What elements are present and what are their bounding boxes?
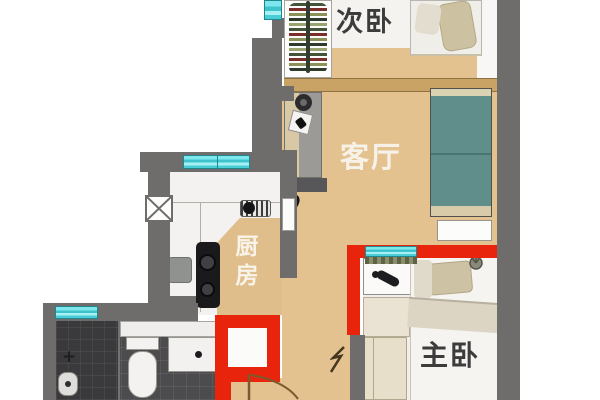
duct-shaft-symbol [145,195,173,222]
bathroom-sink [168,337,218,372]
master-bedroom-label: 主卧 [420,334,480,374]
bedroom-bench [363,297,410,337]
stove [196,242,220,308]
kitchen-sink [168,257,192,283]
dish-rack-pot [243,202,255,214]
dresser [363,337,407,400]
side-table [437,220,492,241]
entry-door-swing [240,372,305,400]
shower-head-icon: + [60,348,78,366]
clothes-rail [306,1,310,73]
wall [43,321,56,400]
floor-mark-icon [330,346,348,376]
sofa-armrest [431,206,491,216]
master-bed-blanket [407,297,499,333]
wall [497,0,520,400]
appliance-icon [295,94,312,111]
floor-drain-icon [58,372,78,396]
window-blind [365,257,417,264]
wall [350,335,365,400]
toilet-tank [126,337,159,350]
sofa-back [431,89,491,96]
master-bedroom-window [365,246,417,257]
master-bed-cushion [414,260,432,298]
desk-item-icon [372,271,379,278]
floor-plan: + 次卧 客厅 厨房 [0,0,600,400]
secondary-bed-cushion [414,2,442,35]
kitchen-label: 厨房 [227,234,261,292]
living-room-label: 客厅 [340,134,402,176]
sofa [430,88,492,217]
sofa-cushions [431,96,491,206]
kitchen-door [282,198,295,231]
bathroom-window [55,306,98,319]
red-wall [347,245,360,335]
wall [272,18,284,38]
toilet-bowl [128,351,157,398]
bathroom-shelf [120,321,218,337]
window [264,0,282,20]
clothes-rack [284,0,332,78]
kitchen-window [183,155,250,169]
stove-burner [199,254,216,271]
wall [148,172,170,195]
wall [280,86,294,101]
stove-burner [200,282,215,297]
secondary-bedroom-label: 次卧 [336,0,394,39]
